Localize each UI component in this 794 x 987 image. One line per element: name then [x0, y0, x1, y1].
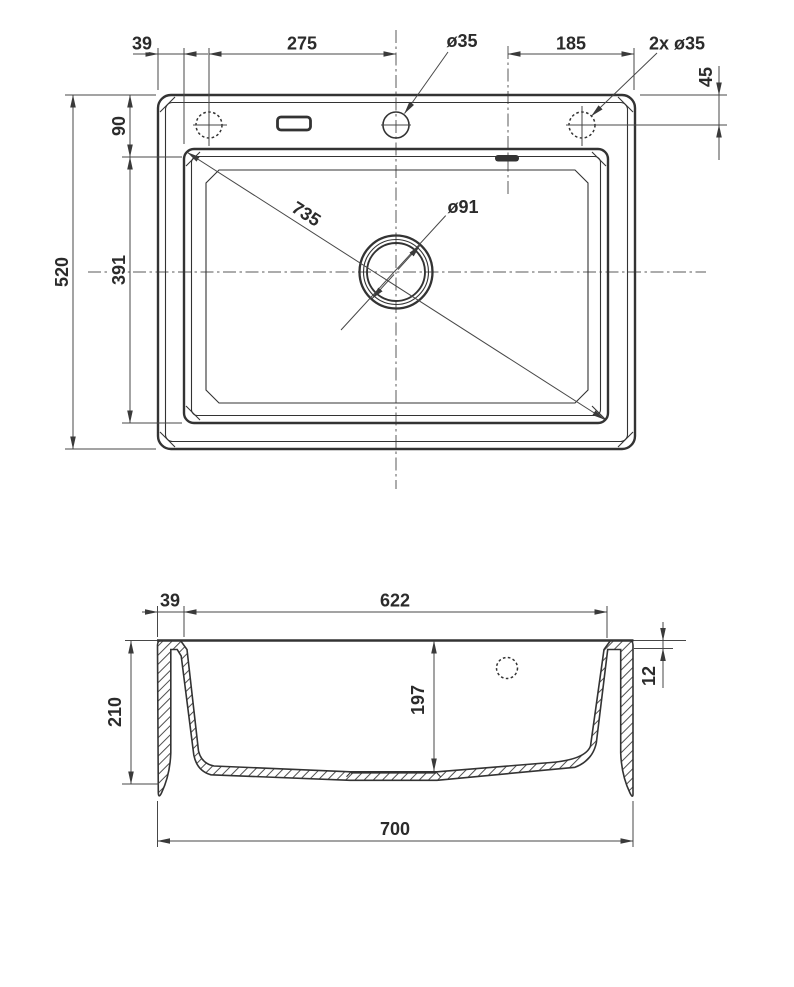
section-overflow-hole [497, 658, 518, 679]
dim-text-diagonal: 735 [288, 197, 324, 230]
side-holes-leader [592, 53, 658, 116]
right-dimension-45: 45 [640, 66, 727, 160]
section-view: 39 622 12 197 210 700 [105, 591, 686, 848]
dim-text-90: 90 [109, 116, 129, 136]
section-dimension-197: 197 [408, 641, 434, 771]
dim-text-391: 391 [109, 255, 129, 285]
dim-text-622: 622 [380, 591, 410, 611]
dim-text-275: 275 [287, 34, 317, 54]
drain-arrow-1 [398, 245, 420, 269]
label-tap-hole: ø35 [446, 31, 477, 51]
drawing-page: 735 ø91 ø35 2x ø35 39 275 185 [0, 0, 794, 987]
dim-text-520: 520 [52, 257, 72, 287]
section-dimension-210: 210 [105, 641, 159, 784]
section-dimension-700: 700 [158, 801, 634, 847]
dim-text-45: 45 [696, 67, 716, 87]
dim-text-210: 210 [105, 697, 125, 727]
dim-text-39-section: 39 [160, 591, 180, 611]
label-side-holes: 2x ø35 [649, 34, 705, 54]
technical-drawing: 735 ø91 ø35 2x ø35 39 275 185 [0, 0, 794, 987]
dim-text-700: 700 [380, 819, 410, 839]
dim-text-drain: ø91 [447, 197, 478, 217]
top-view: 735 ø91 ø35 2x ø35 39 275 185 [52, 30, 727, 489]
overflow-slot [495, 155, 519, 162]
section-top-dimensions: 39 622 [142, 591, 607, 639]
tap-hole-leader [405, 52, 449, 114]
accessory-hole [278, 117, 311, 130]
dim-text-12: 12 [639, 666, 659, 686]
dim-text-185: 185 [556, 34, 586, 54]
section-dimension-12: 12 [634, 622, 673, 688]
dim-text-39-top: 39 [132, 34, 152, 54]
dim-text-197: 197 [408, 685, 428, 715]
